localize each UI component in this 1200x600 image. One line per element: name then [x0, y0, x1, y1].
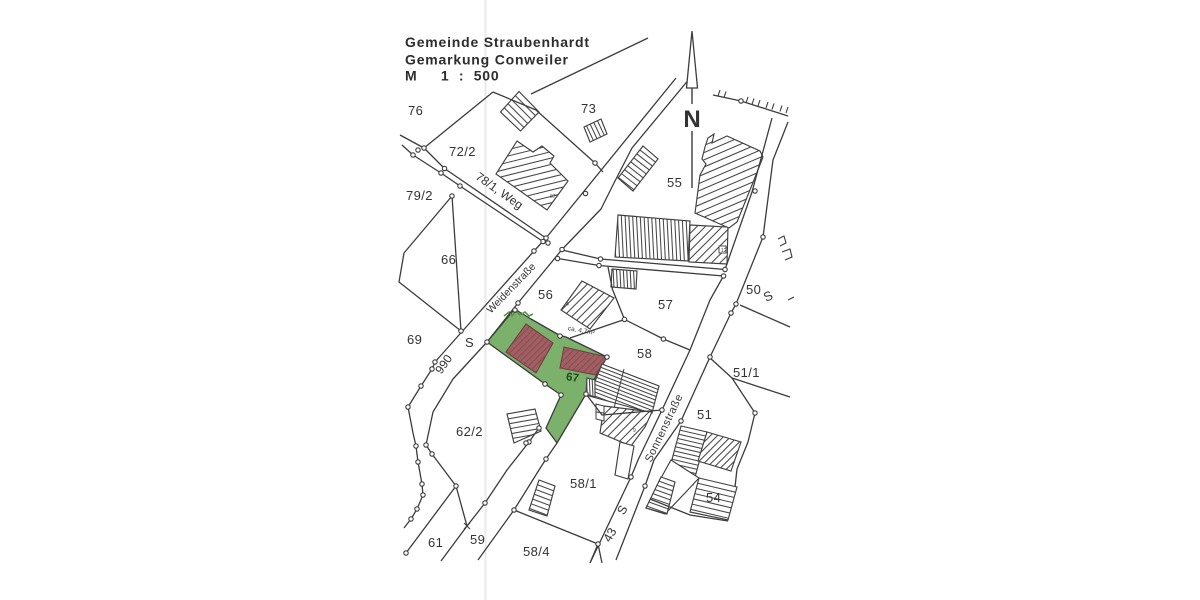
svg-text:55: 55 — [667, 175, 682, 190]
svg-text:73: 73 — [581, 101, 596, 116]
svg-text:79/2: 79/2 — [406, 188, 433, 203]
svg-text:62/2: 62/2 — [456, 424, 483, 439]
svg-text:M 1 : 500: M 1 : 500 — [405, 68, 499, 84]
svg-text:990: 990 — [432, 352, 455, 377]
svg-text:N: N — [683, 106, 700, 133]
svg-text:Gemeinde Straubenhardt: Gemeinde Straubenhardt — [405, 34, 590, 50]
svg-text:12: 12 — [721, 248, 727, 254]
svg-text:43: 43 — [600, 525, 619, 544]
svg-text:S: S — [465, 335, 474, 350]
svg-text:61: 61 — [428, 535, 443, 550]
svg-text:76: 76 — [408, 103, 423, 118]
svg-text:72/2: 72/2 — [449, 144, 476, 159]
svg-text:67: 67 — [565, 371, 579, 385]
svg-text:50: 50 — [746, 282, 761, 297]
svg-text:51: 51 — [697, 407, 712, 422]
svg-text:9: 9 — [633, 428, 636, 434]
svg-text:58: 58 — [637, 346, 652, 361]
svg-text:56: 56 — [538, 287, 553, 302]
svg-text:58/1: 58/1 — [570, 476, 597, 491]
svg-text:57: 57 — [658, 297, 673, 312]
svg-text:58/4: 58/4 — [523, 544, 550, 559]
svg-text:S: S — [614, 503, 630, 517]
svg-text:87: 87 — [550, 194, 556, 200]
svg-text:51/1: 51/1 — [733, 365, 760, 380]
svg-text:59: 59 — [470, 532, 485, 547]
svg-text:66: 66 — [441, 252, 456, 267]
svg-text:69: 69 — [407, 332, 422, 347]
svg-text:Gemarkung Conweiler: Gemarkung Conweiler — [405, 52, 569, 68]
svg-text:S: S — [761, 287, 775, 304]
svg-text:4: 4 — [566, 302, 569, 308]
svg-text:54: 54 — [706, 490, 721, 505]
